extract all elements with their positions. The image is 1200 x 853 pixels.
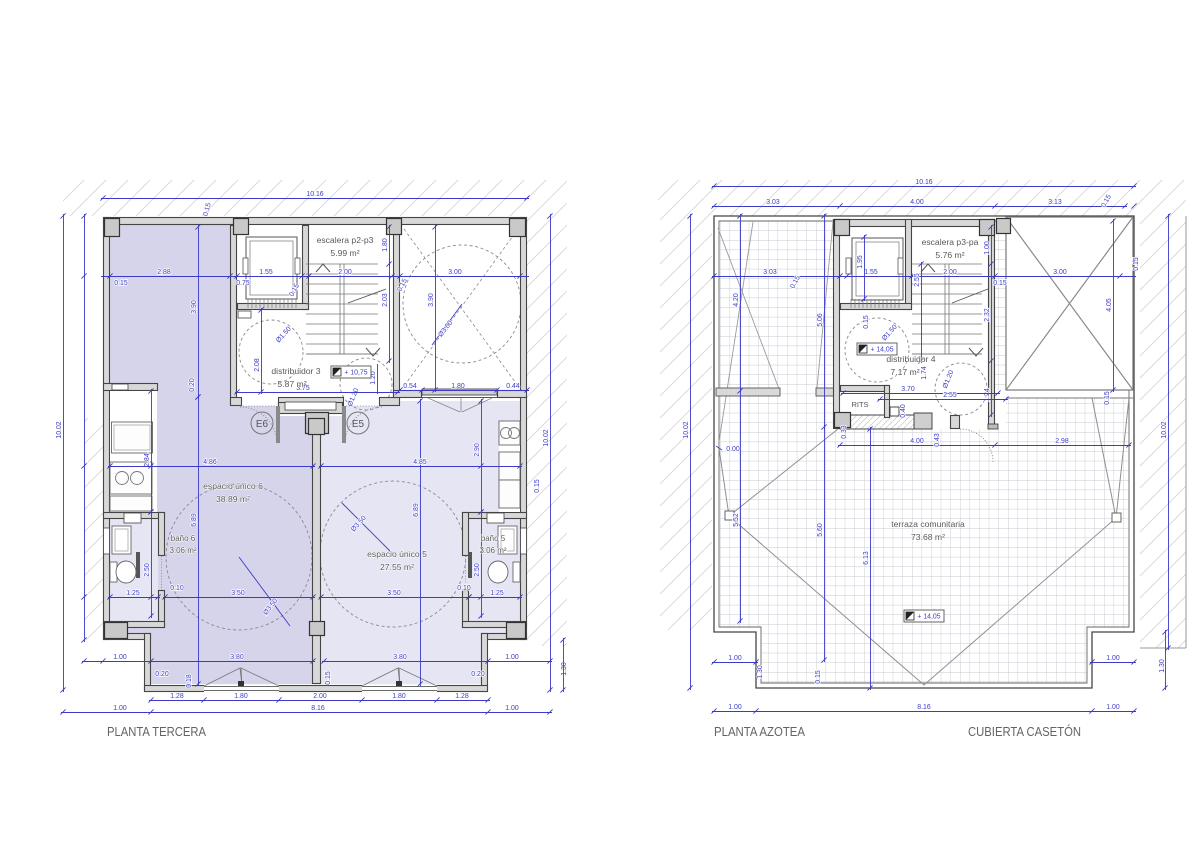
svg-text:escalera p2-p3: escalera p2-p3 (317, 235, 374, 245)
svg-text:baño 6: baño 6 (171, 534, 196, 543)
svg-text:10.02: 10.02 (683, 421, 690, 438)
svg-text:E6: E6 (256, 419, 269, 430)
svg-text:0.15: 0.15 (1133, 257, 1140, 271)
svg-text:1.28: 1.28 (170, 693, 184, 700)
svg-text:1.25: 1.25 (490, 590, 504, 597)
svg-text:5.60: 5.60 (817, 523, 824, 537)
svg-text:0.54: 0.54 (403, 383, 417, 390)
svg-text:0.10: 0.10 (457, 585, 471, 592)
svg-text:2.90: 2.90 (474, 443, 481, 457)
svg-text:4.00: 4.00 (910, 438, 924, 445)
svg-text:3.70: 3.70 (901, 386, 915, 393)
svg-text:0.00: 0.00 (726, 446, 740, 453)
svg-text:7.17 m²: 7.17 m² (890, 367, 919, 377)
svg-text:2.88: 2.88 (157, 269, 171, 276)
svg-text:3.06 m²: 3.06 m² (169, 546, 196, 555)
svg-text:4.20: 4.20 (733, 293, 740, 307)
svg-text:espacio único 6: espacio único 6 (203, 481, 263, 491)
svg-text:2.84: 2.84 (144, 453, 151, 467)
svg-text:3.50: 3.50 (231, 590, 245, 597)
svg-text:E5: E5 (352, 419, 365, 430)
svg-text:1.80: 1.80 (392, 693, 406, 700)
svg-text:10.16: 10.16 (306, 191, 323, 198)
svg-text:1.74: 1.74 (921, 366, 928, 380)
svg-text:0.15: 0.15 (815, 670, 822, 684)
svg-text:2.98: 2.98 (1055, 438, 1069, 445)
svg-text:1.95: 1.95 (857, 255, 864, 269)
svg-text:38.89 m²: 38.89 m² (216, 494, 250, 504)
svg-text:+ 14,05: + 14,05 (870, 347, 893, 354)
svg-text:2.00: 2.00 (338, 269, 352, 276)
svg-text:2.08: 2.08 (254, 358, 261, 372)
svg-text:3.03: 3.03 (766, 199, 780, 206)
svg-text:4.05: 4.05 (1106, 298, 1113, 312)
svg-text:5.52: 5.52 (733, 513, 740, 527)
svg-text:27.55 m²: 27.55 m² (380, 562, 414, 572)
svg-text:CUBIERTA CASETÓN: CUBIERTA CASETÓN (968, 724, 1081, 739)
svg-text:0.75: 0.75 (236, 280, 250, 287)
svg-text:73.68 m²: 73.68 m² (911, 532, 945, 542)
svg-text:8.16: 8.16 (311, 705, 325, 712)
svg-text:6.89: 6.89 (413, 503, 420, 517)
svg-text:+ 10,75: + 10,75 (344, 370, 367, 377)
svg-text:10.02: 10.02 (1161, 421, 1168, 438)
svg-text:3.00: 3.00 (1053, 269, 1067, 276)
svg-text:0.15: 0.15 (1104, 391, 1111, 405)
svg-text:2.55: 2.55 (914, 273, 921, 287)
svg-text:3.80: 3.80 (230, 654, 244, 661)
svg-text:1.00: 1.00 (1106, 704, 1120, 711)
svg-text:10.02: 10.02 (543, 429, 550, 446)
svg-text:1.80: 1.80 (382, 238, 389, 252)
svg-text:1.00: 1.00 (728, 655, 742, 662)
svg-text:1.00: 1.00 (728, 704, 742, 711)
svg-text:6.13: 6.13 (863, 551, 870, 565)
svg-text:0.15: 0.15 (993, 280, 1007, 287)
svg-text:baño 5: baño 5 (481, 534, 506, 543)
svg-text:0.33: 0.33 (841, 425, 848, 439)
svg-text:0.15: 0.15 (325, 671, 332, 685)
svg-text:0.18: 0.18 (186, 674, 193, 688)
svg-text:3.50: 3.50 (387, 590, 401, 597)
svg-text:1.80: 1.80 (234, 693, 248, 700)
svg-text:3.90: 3.90 (428, 293, 435, 307)
svg-text:5.87 m²: 5.87 m² (277, 379, 306, 389)
svg-text:2.55: 2.55 (943, 392, 957, 399)
svg-text:2.50: 2.50 (144, 563, 151, 577)
svg-text:4.00: 4.00 (910, 199, 924, 206)
svg-text:2.03: 2.03 (382, 293, 389, 307)
svg-text:2.00: 2.00 (313, 693, 327, 700)
svg-text:0.43: 0.43 (934, 433, 941, 447)
svg-text:2.50: 2.50 (474, 563, 481, 577)
svg-text:1.30: 1.30 (1159, 659, 1166, 673)
svg-text:8.16: 8.16 (917, 704, 931, 711)
svg-text:5.06: 5.06 (817, 313, 824, 327)
svg-text:10.16: 10.16 (915, 179, 932, 186)
svg-text:1.00: 1.00 (984, 241, 991, 255)
svg-text:1.00: 1.00 (505, 654, 519, 661)
svg-text:0.15: 0.15 (114, 280, 128, 287)
svg-text:1.00: 1.00 (1106, 655, 1120, 662)
svg-text:escalera p3-pa: escalera p3-pa (922, 237, 979, 247)
svg-text:1.55: 1.55 (864, 269, 878, 276)
svg-text:0.15: 0.15 (534, 479, 541, 493)
svg-text:0.40: 0.40 (900, 404, 907, 418)
svg-text:2.32: 2.32 (984, 308, 991, 322)
svg-text:3.13: 3.13 (1048, 199, 1062, 206)
svg-text:1.30: 1.30 (561, 662, 568, 676)
svg-text:0.20: 0.20 (189, 378, 196, 392)
svg-text:PLANTA AZOTEA: PLANTA AZOTEA (714, 724, 805, 739)
svg-text:5.76 m²: 5.76 m² (935, 250, 964, 260)
svg-text:0.20: 0.20 (471, 671, 485, 678)
svg-text:0.15: 0.15 (863, 315, 870, 329)
svg-text:terraza comunitaria: terraza comunitaria (891, 519, 965, 529)
svg-text:6.89: 6.89 (191, 513, 198, 527)
svg-text:4.86: 4.86 (203, 459, 217, 466)
svg-text:1.00: 1.00 (505, 705, 519, 712)
svg-text:1.00: 1.00 (113, 654, 127, 661)
svg-text:3.06 m²: 3.06 m² (479, 546, 506, 555)
svg-text:3.00: 3.00 (448, 269, 462, 276)
svg-text:distribuidor 3: distribuidor 3 (271, 366, 320, 376)
svg-text:0.10: 0.10 (170, 585, 184, 592)
svg-text:1.25: 1.25 (126, 590, 140, 597)
svg-text:PLANTA TERCERA: PLANTA TERCERA (107, 724, 206, 739)
svg-text:5.99 m²: 5.99 m² (330, 248, 359, 258)
svg-text:espacio único 5: espacio único 5 (367, 549, 427, 559)
svg-text:4.85: 4.85 (413, 459, 427, 466)
svg-text:2.00: 2.00 (943, 269, 957, 276)
svg-text:1.30: 1.30 (757, 665, 764, 679)
svg-text:10.02: 10.02 (56, 421, 63, 438)
svg-text:RITS: RITS (851, 400, 868, 409)
svg-text:0.44: 0.44 (506, 383, 520, 390)
svg-text:1.28: 1.28 (455, 693, 469, 700)
svg-text:1.55: 1.55 (259, 269, 273, 276)
svg-text:distribuidor 4: distribuidor 4 (886, 354, 935, 364)
svg-text:1.00: 1.00 (113, 705, 127, 712)
svg-text:+ 14,05: + 14,05 (917, 614, 940, 621)
svg-text:3.80: 3.80 (393, 654, 407, 661)
svg-text:3.90: 3.90 (191, 300, 198, 314)
svg-text:1.80: 1.80 (451, 383, 465, 390)
svg-text:3.03: 3.03 (763, 269, 777, 276)
svg-text:0.20: 0.20 (155, 671, 169, 678)
